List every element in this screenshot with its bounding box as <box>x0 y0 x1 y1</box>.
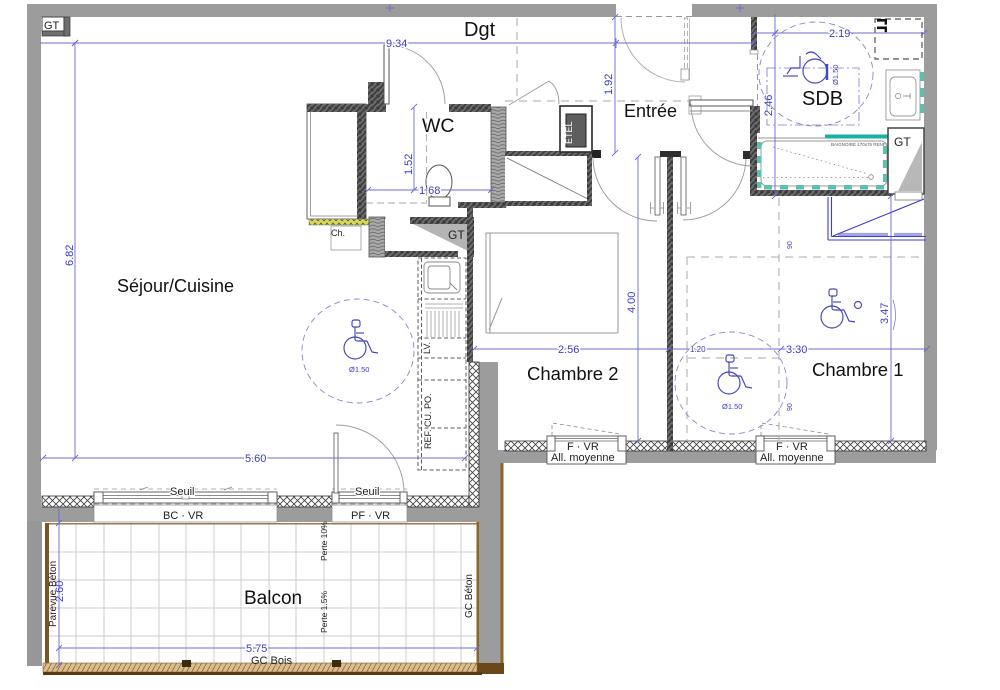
svg-text:Perte 1.5%: Perte 1.5% <box>319 591 329 633</box>
svg-text:2.46: 2.46 <box>763 95 775 116</box>
svg-text:PF · VR: PF · VR <box>351 510 390 522</box>
svg-text:5.60: 5.60 <box>245 453 266 465</box>
svg-text:1.68: 1.68 <box>419 185 440 197</box>
svg-text:90: 90 <box>787 403 794 411</box>
svg-text:All. moyenne: All. moyenne <box>551 452 615 464</box>
svg-text:90: 90 <box>787 241 794 249</box>
svg-text:Dgt: Dgt <box>464 19 496 41</box>
svg-text:1.20: 1.20 <box>690 345 706 354</box>
svg-text:GT: GT <box>894 135 911 149</box>
svg-text:All. moyenne: All. moyenne <box>760 452 824 464</box>
svg-text:Perte 10%: Perte 10% <box>319 521 329 561</box>
svg-text:Séjour/Cuisine: Séjour/Cuisine <box>117 276 234 296</box>
svg-text:SDB: SDB <box>802 88 843 110</box>
svg-text:Entrée: Entrée <box>624 101 677 121</box>
svg-text:2.19: 2.19 <box>829 28 850 40</box>
svg-text:2.56: 2.56 <box>558 344 579 356</box>
svg-text:ETEL: ETEL <box>564 121 574 144</box>
svg-text:GT: GT <box>44 20 60 32</box>
svg-text:Ch.: Ch. <box>331 228 345 238</box>
svg-text:Ø1.50: Ø1.50 <box>722 402 742 411</box>
svg-text:3.30: 3.30 <box>786 344 807 356</box>
svg-text:4.00: 4.00 <box>626 292 638 313</box>
svg-text:LV.: LV. <box>422 342 432 354</box>
svg-text:Balcon: Balcon <box>244 588 302 609</box>
svg-text:3.47: 3.47 <box>879 303 891 324</box>
svg-text:Chambre 2: Chambre 2 <box>527 363 619 384</box>
svg-text:Chambre 1: Chambre 1 <box>812 359 904 380</box>
svg-text:GC Bois: GC Bois <box>251 655 292 667</box>
svg-text:5.75: 5.75 <box>246 643 267 655</box>
svg-text:1.92: 1.92 <box>603 74 615 95</box>
svg-text:Seuil: Seuil <box>170 486 194 498</box>
svg-text:GC Béton: GC Béton <box>464 574 475 618</box>
svg-text:9.34: 9.34 <box>386 38 407 50</box>
svg-text:6.82: 6.82 <box>64 245 76 266</box>
svg-text:Ø1.50: Ø1.50 <box>831 65 840 85</box>
svg-text:BAIGNOIRE 170x75 RENF.: BAIGNOIRE 170x75 RENF. <box>831 142 886 147</box>
svg-text:1.52: 1.52 <box>403 154 415 175</box>
svg-text:GT: GT <box>448 228 465 242</box>
svg-text:Parevue Béton: Parevue Béton <box>48 561 59 627</box>
svg-text:REF. CU. PO.: REF. CU. PO. <box>423 393 433 449</box>
svg-text:Ø1.50: Ø1.50 <box>349 365 369 374</box>
svg-text:Seuil: Seuil <box>355 486 379 498</box>
svg-text:BC · VR: BC · VR <box>163 510 203 522</box>
